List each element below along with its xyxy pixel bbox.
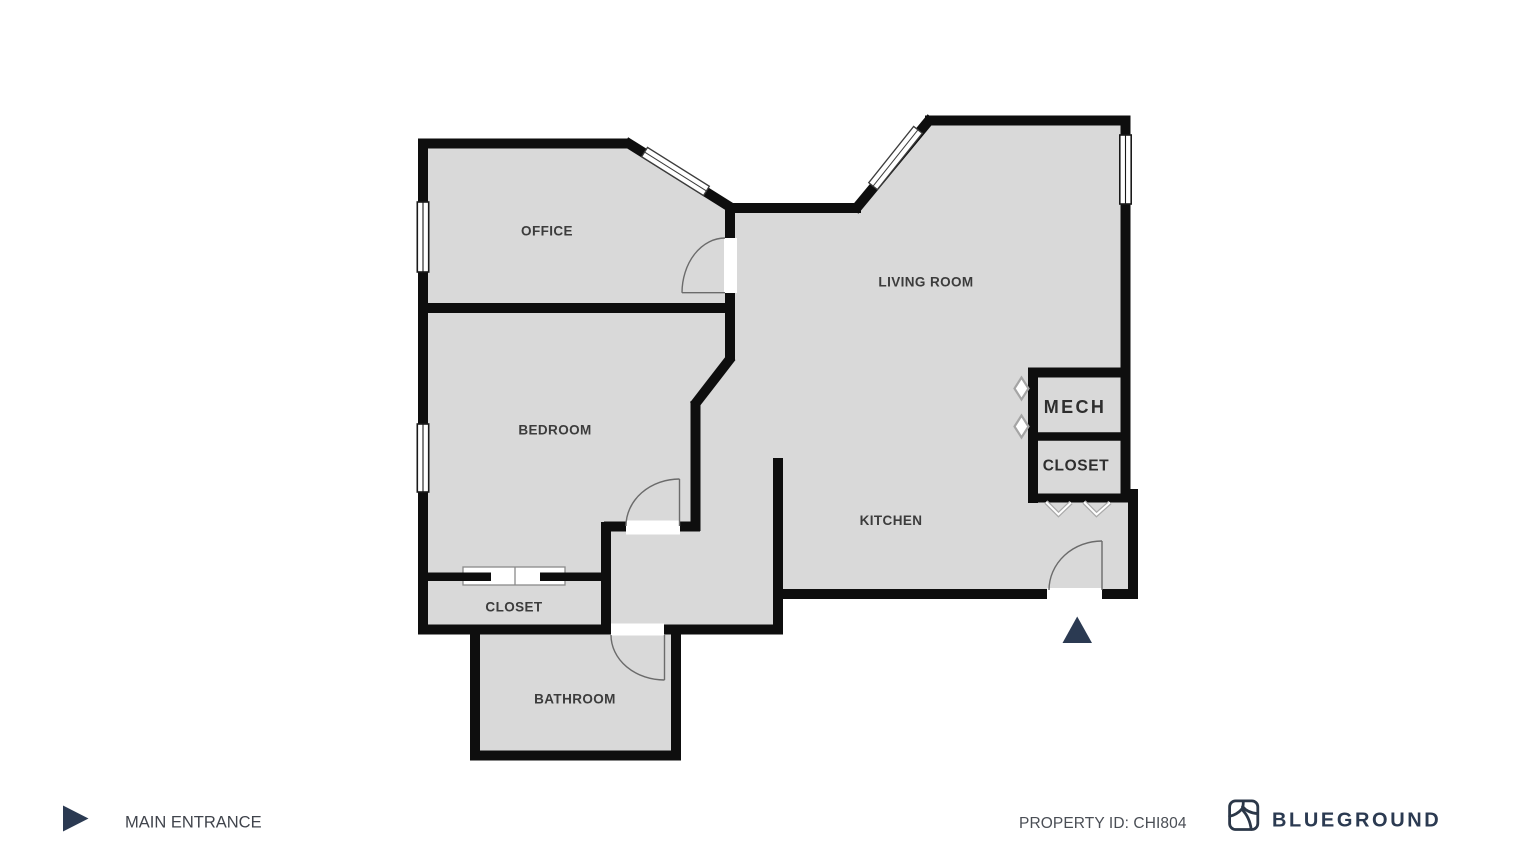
svg-text:BEDROOM: BEDROOM <box>518 423 591 438</box>
svg-text:BLUEGROUND: BLUEGROUND <box>1272 810 1441 832</box>
svg-text:LIVING ROOM: LIVING ROOM <box>878 275 973 290</box>
svg-text:KITCHEN: KITCHEN <box>860 513 923 528</box>
svg-text:MECH: MECH <box>1044 397 1107 417</box>
svg-text:BATHROOM: BATHROOM <box>534 692 616 707</box>
svg-text:CLOSET: CLOSET <box>1043 458 1109 475</box>
svg-text:MAIN ENTRANCE: MAIN ENTRANCE <box>125 814 262 832</box>
svg-text:PROPERTY ID: CHI804: PROPERTY ID: CHI804 <box>1019 815 1187 832</box>
svg-text:CLOSET: CLOSET <box>485 600 543 615</box>
svg-text:OFFICE: OFFICE <box>521 224 573 239</box>
